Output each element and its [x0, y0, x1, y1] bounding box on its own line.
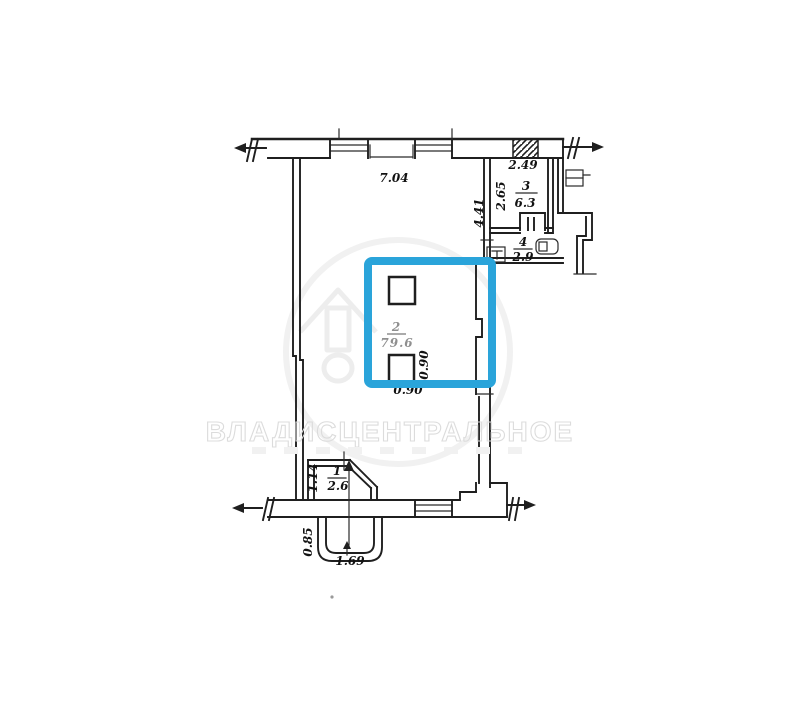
scan-speck	[330, 595, 333, 598]
dim-porch-width: 1.69	[335, 554, 365, 568]
room4-area: 2.9	[512, 250, 535, 264]
top-wall	[234, 129, 604, 161]
dim-right-wall-depth: 4.41	[472, 198, 486, 227]
entrance-arrow	[343, 460, 354, 555]
break-arrow-bottom-right	[507, 498, 536, 520]
dim-top-wall: 7.04	[379, 171, 408, 185]
watermark-small-print	[252, 447, 522, 454]
room2-number: 2	[391, 320, 400, 334]
entrance-porch	[318, 460, 382, 561]
break-arrow-top-right	[563, 138, 604, 158]
door-symbol	[520, 213, 545, 230]
room3-area: 6.3	[515, 196, 536, 210]
room1-number: 1	[333, 464, 341, 478]
break-arrow-top-left	[234, 139, 266, 161]
dim-porch-depth: 0.85	[301, 527, 315, 556]
dim-room3-depth: 2.65	[494, 181, 508, 211]
room2-area: 79.6	[380, 336, 413, 350]
room1-area: 2.6	[327, 479, 350, 493]
dim-room1-depth: 1.14	[306, 463, 320, 492]
toilet-icon	[536, 239, 558, 254]
dim-column-vertical: 0.90	[417, 350, 431, 380]
bottom-wall	[232, 483, 536, 520]
room4-number: 4	[519, 235, 527, 249]
floor-plan-drawing: 7.04 2.49 2.65 3 6.3 4.41 4 2.9 2 79.6 0…	[0, 0, 800, 702]
watermark-text: ВЛАДИСЦЕНТРАЛЬНОЕ	[206, 416, 574, 447]
floor-plan-image: 7.04 2.49 2.65 3 6.3 4.41 4 2.9 2 79.6 0…	[0, 0, 800, 702]
room3-number: 3	[522, 179, 530, 193]
labels: 7.04 2.49 2.65 3 6.3 4.41 4 2.9 2 79.6 0…	[301, 158, 538, 568]
dim-room3-width: 2.49	[507, 158, 538, 172]
hatched-wall-section	[513, 139, 538, 158]
